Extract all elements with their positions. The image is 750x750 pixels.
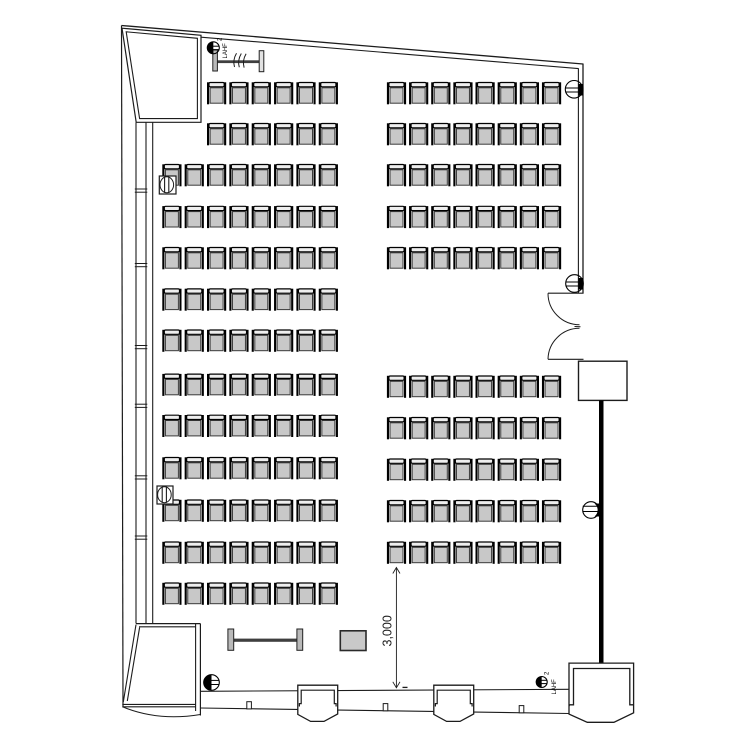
svg-text:3,000: 3,000 [381,615,395,646]
svg-text:LAHF: LAHF [552,679,558,695]
svg-text:2: 2 [545,671,551,675]
svg-text:LAHF: LAHF [223,43,229,59]
svg-text:2: 2 [218,37,224,41]
